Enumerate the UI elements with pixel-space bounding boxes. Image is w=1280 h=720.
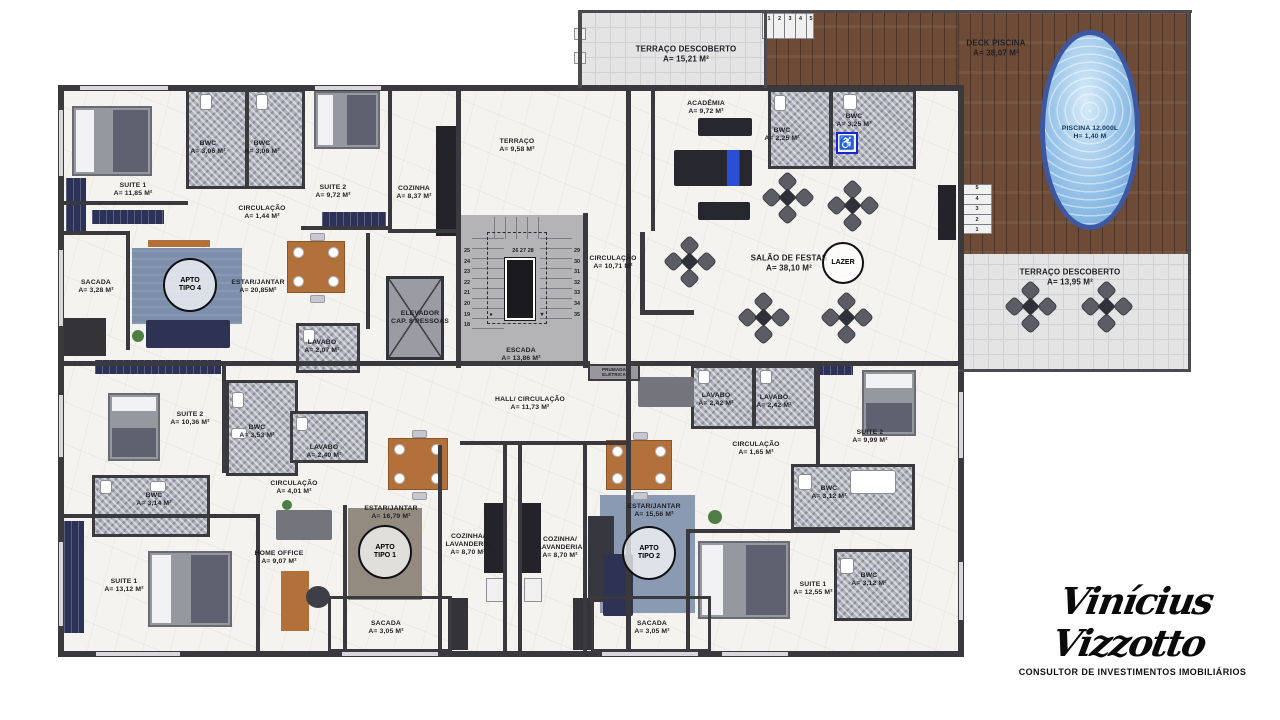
kitchen-counter [938,185,956,240]
circulacao-br-label: CIRCULAÇÃOA= 1,65 M² [732,441,779,457]
terraco-interno-line: TERRAÇO [499,138,534,146]
white-fixture [524,578,542,602]
wall [256,516,260,651]
piscina-line: H= 1,40 M [1062,133,1118,141]
suite2-tl-line: SUITE 2 [315,184,350,192]
bwc-pcd-line: BWC [836,113,871,121]
sanitary-fixture [850,470,896,494]
dining-table [287,241,345,293]
circulacao-comum-label: CIRCULAÇÃOA= 10,71 M² [589,255,636,271]
lavabo-tl-line: LAVABO [304,339,339,347]
estar-br-line: A= 15,56 M² [627,511,680,519]
wall [640,310,694,315]
chair [633,492,648,500]
party-table [837,308,855,326]
apto-tipo-1-badge: APTOTIPO 1 [358,525,412,579]
plate [293,247,304,258]
apto-tipo-4-text: APTO [180,277,199,285]
terraco-descoberto-r-label: TERRAÇO DESCOBERTOA= 13,95 M² [1020,268,1121,287]
home-office-label: HOME OFFICEA= 9,07 M² [255,550,304,566]
bathroom [186,89,248,189]
cozinha-br-line: LAVANDERIA [537,544,582,552]
wood [148,240,210,247]
hall-circulacao-label: HALL/ CIRCULAÇÃOA= 11,73 M² [495,396,565,412]
wardrobe [92,210,164,224]
terraco-descoberto-top-label: TERRAÇO DESCOBERTOA= 15,21 M² [636,45,737,64]
wall [58,85,964,91]
deck-step-number: 4 [975,196,978,202]
bwc-academia-label: BWCA= 2,25 M² [764,127,799,143]
floor-plan: ♿ Vinícius Vizzotto CONSULTOR DE INVESTI… [0,0,1280,720]
bwc-pcd-label: BWCA= 3,25 M² [836,113,871,129]
entry-step-number: 5 [809,16,812,22]
plate [293,276,304,287]
window [59,395,63,457]
stair-number: 31 [574,269,580,275]
wardrobe [322,212,386,226]
bwc-br-2-line: BWC [851,572,886,580]
window [59,542,63,626]
stair-number: 30 [574,259,580,265]
window [959,562,963,620]
lavabo-ml-line: A= 2,40 M² [306,452,341,460]
cozinha-bl-line: COZINHA/ [445,533,490,541]
deck-step-number: 3 [975,206,978,212]
suite1-bl-label: SUITE 1A= 13,12 M² [104,578,143,594]
stair-number: 24 [464,259,470,265]
chair-cluster [766,176,810,220]
apto-tipo-1-text: APTO [375,544,394,552]
entry-step-number: 2 [778,16,781,22]
outline-wall [958,369,1191,372]
wall [686,529,840,533]
apto-tipo-2-badge: APTOTIPO 2 [622,526,676,580]
window [315,86,381,90]
stair-number: 29 [574,248,580,254]
sanitary-fixture [774,95,786,111]
elevador-label: ELEVADORCAP. 8 PESSOAS [391,310,449,326]
window [80,86,168,90]
sacada-tl-line: A= 3,28 M² [78,287,113,295]
bwc-tl-1-line: BWC [190,140,225,148]
wardrobe [64,521,84,633]
apto-tipo-2-text: TIPO 2 [638,553,660,561]
bwc-br-2-line: A= 3,12 M² [851,580,886,588]
bwc-tl-2-line: BWC [244,140,279,148]
wall [388,229,460,233]
elevador-line: CAP. 8 PESSOAS [391,318,449,326]
party-table [754,308,772,326]
estar-br-label: ESTAR/JANTARA= 15,56 M² [627,503,680,519]
lavabo-r2-line: LAVABO [756,394,791,402]
window [722,652,788,656]
plate [655,446,666,457]
sofa-navy [146,320,230,348]
suite2-ml-line: A= 10,36 M² [170,419,209,427]
wall [58,651,964,657]
escada-label: ESCADAA= 13,86 M² [501,347,540,363]
window [96,652,180,656]
chair-cluster [1009,285,1053,329]
cozinha-bl-label: COZINHA/LAVANDERIAA= 8,70 M² [445,533,490,557]
party-table [843,196,861,214]
sanitary-fixture [760,370,772,384]
bwc-ml-line: BWC [239,424,274,432]
terraco-descoberto-top-line: TERRAÇO DESCOBERTO [636,45,737,55]
cozinha-br-line: COZINHA/ [537,536,582,544]
stair-number: 35 [574,312,580,318]
bwc-tl-2-label: BWCA= 3,06 M² [244,140,279,156]
sacada-bl-label: SACADAA= 3,05 M² [368,620,403,636]
outline-wall [578,10,582,88]
cozinha-tl-line: COZINHA [396,185,431,193]
suite2-br-line: A= 9,99 M² [852,437,887,445]
bwc-br-1-label: BWCA= 3,12 M² [811,485,846,501]
stair-number: 25 [464,248,470,254]
hall-circulacao-line: HALL/ CIRCULAÇÃO [495,396,565,404]
wall [366,233,370,329]
suite1-bl-line: A= 13,12 M² [104,586,143,594]
academia-line: ACADÊMIA [687,100,725,108]
entry-step-number: 1 [767,16,770,22]
plate [655,473,666,484]
suite2-ml-label: SUITE 2A= 10,36 M² [170,411,209,427]
lavabo-r1-label: LAVABOA= 2,42 M² [698,392,733,408]
circulacao-tl-label: CIRCULAÇÃOA= 1,44 M² [238,205,285,221]
party-table [1021,297,1039,315]
outline-wall [578,10,770,13]
cozinha-br-line: A= 8,70 M² [537,552,582,560]
bwc-pcd-line: A= 3,25 M² [836,121,871,129]
lavabo-r1-line: A= 2,42 M² [698,400,733,408]
wall [388,89,392,233]
cozinha-bl-line: LAVANDERIA [445,541,490,549]
kitchen-counter [436,126,458,236]
bwc-br-1-line: BWC [811,485,846,493]
wall [222,365,226,473]
bwc-ml-2-label: BWCA= 3,14 M² [136,492,171,508]
circulacao-ml-line: CIRCULAÇÃO [270,480,317,488]
apto-tipo-1-text: TIPO 1 [374,552,396,560]
bwc-br-2-label: BWCA= 3,12 M² [851,572,886,588]
plate [328,247,339,258]
lavabo-ml-label: LAVABOA= 2,40 M² [306,444,341,460]
bed-v [862,370,916,436]
plant [708,510,722,524]
sofa-gray [276,510,332,540]
terraco-interno-line: A= 9,58 M² [499,146,534,154]
estar-tl-line: A= 20,85M² [231,287,284,295]
stair-number-top: 26 27 28 [512,248,533,254]
chair-cluster [742,296,786,340]
plate [612,446,623,457]
lazer-text: LAZER [831,259,854,267]
deck-piscina-label: DECK PISCINAA= 38,07 M² [966,39,1025,58]
plant [282,500,292,510]
wall [640,232,645,314]
stair-number: 18 [464,322,470,328]
circulacao-comum-line: CIRCULAÇÃO [589,255,636,263]
bed-v [108,393,160,461]
wall [126,231,130,350]
bwc-ml-2-line: BWC [136,492,171,500]
lavabo-tl-line: A= 2,07 M² [304,347,339,355]
wall [626,361,964,366]
deck-step-number: 5 [975,185,978,191]
wall [583,213,588,368]
deck-piscina-line: A= 38,07 M² [966,48,1025,58]
cozinha-bl-line: A= 8,70 M² [445,549,490,557]
dashpath [487,232,547,324]
bwc-academia-line: BWC [764,127,799,135]
deck-piscina-line: DECK PISCINA [966,39,1025,49]
logo-signature: Vinícius Vizzotto [978,580,1280,664]
suite1-bl-line: SUITE 1 [104,578,143,586]
window [602,652,698,656]
lavabo-ml-line: LAVABO [306,444,341,452]
suite1-tl-label: SUITE 1A= 11,85 M² [114,182,153,198]
bwc-academia-line: A= 2,25 M² [764,135,799,143]
chair-cluster [668,240,712,284]
estar-bl-line: A= 16,79 M² [364,513,417,521]
suite1-tl-line: SUITE 1 [114,182,153,190]
circulacao-tl-line: A= 1,44 M² [238,213,285,221]
escada-line: ESCADA [501,347,540,355]
broker-logo: Vinícius Vizzotto CONSULTOR DE INVESTIME… [985,580,1280,677]
stair-number: 23 [464,269,470,275]
plant [132,330,144,342]
academia-line: A= 9,72 M² [687,108,725,116]
bathroom [246,89,305,189]
suite1-br-line: A= 12,55 M² [793,589,832,597]
bed-h [72,106,152,176]
window [59,250,63,326]
sacada-br-line: SACADA [634,620,669,628]
gym [698,202,750,220]
plate [328,276,339,287]
wall [456,213,461,368]
outline-wall [764,10,1192,13]
lavabo-r2-line: A= 2,42 M² [756,402,791,410]
stair-number: 21 [464,290,470,296]
entry-step-number: 4 [799,16,802,22]
plate [612,473,623,484]
bwc-tl-2-line: A= 3,06 M² [244,148,279,156]
cozinha-br-label: COZINHA/LAVANDERIAA= 8,70 M² [537,536,582,560]
apto-tipo-4-badge: APTOTIPO 4 [163,258,217,312]
dark-floor [573,598,591,650]
bed-h [698,541,790,619]
terraco-descoberto-top-line: A= 15,21 M² [636,54,737,64]
chair [310,295,325,303]
logo-subtitle: CONSULTOR DE INVESTIMENTOS IMOBILIÁRIOS [985,667,1280,677]
suite1-tl-line: A= 11,85 M² [114,190,153,198]
cozinha-tl-line: A= 8,37 M² [396,193,431,201]
prumada-line: ELÉTRICA [602,372,626,377]
entry-step-number: 3 [788,16,791,22]
prumada-label: PRUMADAELÉTRICA [602,367,626,377]
deck-step-number: 1 [975,227,978,233]
chair [633,432,648,440]
wall [503,445,507,651]
piscina-line: PISCINA 12.000L [1062,125,1118,133]
salao-festas-label: SALÃO DE FESTASA= 38,10 M² [751,254,828,273]
terraco-interno-label: TERRAÇOA= 9,58 M² [499,138,534,154]
dark-floor [60,318,106,356]
wall [816,365,820,466]
wall [58,514,260,518]
escada-line: A= 13,86 M² [501,355,540,363]
party-table [680,252,698,270]
wood [281,571,309,631]
sanitary-fixture [256,94,268,110]
wall [301,226,390,230]
circulacao-tl-line: CIRCULAÇÃO [238,205,285,213]
lavabo-tl-label: LAVABOA= 2,07 M² [304,339,339,355]
sanitary-fixture [100,480,112,494]
estar-bl-label: ESTAR/JANTARA= 16,79 M² [364,505,417,521]
bwc-tl-1-label: BWCA= 3,06 M² [190,140,225,156]
chair-cluster [1085,285,1129,329]
sanitary-fixture [296,417,308,431]
stair-number: 33 [574,290,580,296]
deck-step-number: 2 [975,217,978,223]
gym [698,118,752,136]
apto-tipo-2-text: APTO [639,545,658,553]
wall [58,201,188,205]
chair-cluster [825,296,869,340]
wheelchair-icon: ♿ [836,132,858,154]
circulacao-br-line: CIRCULAÇÃO [732,441,779,449]
chair-dark [306,586,330,608]
hall-circulacao-line: A= 11,73 M² [495,404,565,412]
home-office-line: HOME OFFICE [255,550,304,558]
suite2-tl-line: A= 9,72 M² [315,192,350,200]
sacada-bl-line: A= 3,05 M² [368,628,403,636]
lazer-badge: LAZER [822,242,864,284]
circulacao-ml-line: A= 4,01 M² [270,488,317,496]
apto-tipo-4-text: TIPO 4 [179,285,201,293]
stair-number: 19 [464,312,470,318]
chair [412,492,427,500]
stair-number: 20 [464,301,470,307]
sacada-br-line: A= 3,05 M² [634,628,669,636]
stair-number: 34 [574,301,580,307]
home-office-line: A= 9,07 M² [255,558,304,566]
salao-festas-line: SALÃO DE FESTAS [751,254,828,264]
suite1-br-line: SUITE 1 [793,581,832,589]
sanitary-fixture [843,94,857,110]
elevador-line: ELEVADOR [391,310,449,318]
circulacao-ml-label: CIRCULAÇÃOA= 4,01 M² [270,480,317,496]
estar-tl-line: ESTAR/JANTAR [231,279,284,287]
window [59,110,63,176]
stair-path-start: ● [489,312,492,318]
salao-festas-line: A= 38,10 M² [751,263,828,273]
circulacao-comum-line: A= 10,71 M² [589,263,636,271]
party-table [778,188,796,206]
party-table [1097,297,1115,315]
white-fixture [486,578,504,602]
estar-tl-label: ESTAR/JANTARA= 20,85M² [231,279,284,295]
suite2-ml-line: SUITE 2 [170,411,209,419]
sacada-br-label: SACADAA= 3,05 M² [634,620,669,636]
bwc-ml-line: A= 3,53 M² [239,432,274,440]
academia-label: ACADÊMIAA= 9,72 M² [687,100,725,116]
bed-h [314,91,380,149]
wall [58,231,130,235]
bwc-ml-2-line: A= 3,14 M² [136,500,171,508]
wall [518,445,522,651]
sacada-tl-label: SACADAA= 3,28 M² [78,279,113,295]
sanitary-fixture [150,481,166,492]
suite2-br-line: SUITE 2 [852,429,887,437]
wall [583,445,587,651]
wardrobe [66,178,86,232]
chair-cluster [831,184,875,228]
terraco-descoberto-r-line: A= 13,95 M² [1020,277,1121,287]
window [959,392,963,458]
chair [310,233,325,241]
plate [394,444,405,455]
bwc-br-1-line: A= 3,12 M² [811,493,846,501]
circulacao-br-line: A= 1,65 M² [732,449,779,457]
chair [412,430,427,438]
suite1-br-label: SUITE 1A= 12,55 M² [793,581,832,597]
wall [456,85,461,215]
bwc-ml-label: BWCA= 3,53 M² [239,424,274,440]
sanitary-fixture [200,94,212,110]
stair-number: 22 [464,280,470,286]
window [342,652,438,656]
wall [460,441,630,445]
stair-number: 32 [574,280,580,286]
stair-path-arrow: ▼ [539,312,544,318]
sacada-tl-line: SACADA [78,279,113,287]
terraco-descoberto-r-line: TERRAÇO DESCOBERTO [1020,268,1121,278]
cozinha-tl-label: COZINHAA= 8,37 M² [396,185,431,201]
bwc-tl-1-line: A= 3,06 M² [190,148,225,156]
estar-bl-line: ESTAR/JANTAR [364,505,417,513]
sanitary-fixture [698,370,710,384]
suite2-tl-label: SUITE 2A= 9,72 M² [315,184,350,200]
outline-wall [1188,10,1191,372]
lavabo-r1-line: LAVABO [698,392,733,400]
piscina-label: PISCINA 12.000LH= 1,40 M [1062,125,1118,141]
sacada-bl-line: SACADA [368,620,403,628]
suite2-br-label: SUITE 2A= 9,99 M² [852,429,887,445]
gym [674,150,752,186]
dining-table [606,440,672,490]
bed-h [148,551,232,627]
sanitary-fixture [798,474,812,490]
sanitary-fixture [232,392,244,408]
estar-br-line: ESTAR/JANTAR [627,503,680,511]
lavabo-r2-label: LAVABOA= 2,42 M² [756,394,791,410]
sofa-gray [638,377,694,407]
wall [651,89,655,231]
plate [394,473,405,484]
